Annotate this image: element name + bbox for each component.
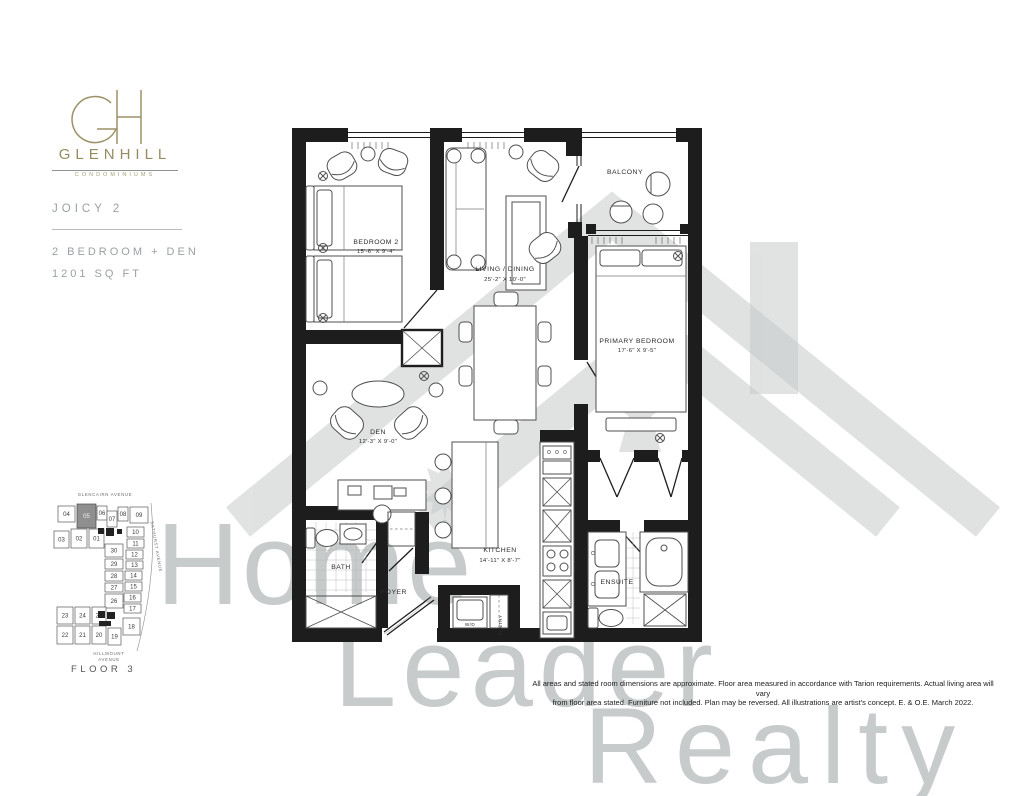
keyplan-unit-label-18: 18 bbox=[128, 625, 135, 631]
street-label-hillmount-2: AVENUE bbox=[98, 657, 120, 662]
primary-bedroom-label: PRIMARY BEDROOM bbox=[599, 338, 674, 345]
keyplan-unit-label-13: 13 bbox=[131, 563, 138, 569]
keyplan-unit-label-04: 04 bbox=[63, 512, 70, 518]
floor-plan: BEDROOM 2 15'-6" X 9'-4" LIVING / DINING… bbox=[290, 108, 710, 648]
living-furniture bbox=[446, 145, 565, 434]
bedroom2-dims: 15'-6" X 9'-4" bbox=[357, 249, 395, 255]
keyplan-unit-label-28: 28 bbox=[111, 574, 118, 580]
disclaimer-line-2: from floor area stated. Furniture not in… bbox=[532, 698, 994, 708]
kitchen-dims: 14'-11" X 8'-7" bbox=[479, 558, 520, 564]
balcony-furniture bbox=[610, 172, 670, 224]
keyplan-unit-label-22: 22 bbox=[62, 633, 69, 639]
primary-bedroom-dims: 17'-6" X 9'-5" bbox=[618, 348, 656, 354]
living-dining-dims: 25'-2" X 10'-0" bbox=[484, 277, 526, 283]
sidebar: GLENHILL CONDOMINIUMS JOICY 2 2 BEDROOM … bbox=[0, 0, 230, 796]
plan-area: 1201 SQ FT bbox=[52, 268, 142, 280]
keyplan-unit-label-16: 16 bbox=[129, 596, 136, 602]
keyplan-unit-label-20: 20 bbox=[96, 633, 103, 639]
keyplan-unit-label-08: 08 bbox=[120, 512, 127, 518]
street-label-glencairn: GLENCAIRN AVENUE bbox=[78, 492, 133, 497]
den-furniture bbox=[313, 372, 443, 524]
bath-fixtures bbox=[306, 522, 376, 628]
den-label: DEN bbox=[370, 429, 386, 436]
bedroom2-label: BEDROOM 2 bbox=[353, 239, 398, 246]
keyplan-unit-label-21: 21 bbox=[79, 633, 86, 639]
wd-label: W/D bbox=[465, 622, 475, 627]
keyplan-unit-label-12: 12 bbox=[131, 553, 138, 559]
plan-name: JOICY 2 bbox=[52, 203, 123, 215]
disclaimer-line-1: All areas and stated room dimensions are… bbox=[532, 679, 994, 698]
keyplan-unit-label-07: 07 bbox=[109, 517, 116, 523]
ensuite-label: ENSUITE bbox=[601, 579, 634, 586]
keyplan-unit-label-24: 24 bbox=[79, 614, 86, 620]
plan-type: 2 BEDROOM + DEN bbox=[52, 246, 199, 258]
brand-subtitle: CONDOMINIUMS bbox=[52, 172, 178, 178]
keyplan-unit-label-03: 03 bbox=[58, 538, 65, 544]
foyer-fixtures bbox=[388, 512, 415, 546]
keyplan-unit-label-02: 02 bbox=[76, 537, 83, 543]
living-dining-label: LIVING / DINING bbox=[475, 266, 534, 273]
key-plan: GLENCAIRN AVENUE BATHURST AVENUE 0405060… bbox=[45, 487, 215, 672]
balcony-label: BALCONY bbox=[607, 169, 643, 176]
brand-name: GLENHILL bbox=[52, 146, 178, 171]
keyplan-unit-label-19: 19 bbox=[111, 635, 118, 641]
keyplan-unit-label-14: 14 bbox=[130, 574, 137, 580]
kitchen-label: KITCHEN bbox=[483, 547, 516, 554]
bedroom2-closet bbox=[402, 330, 442, 366]
bath-label: BATH bbox=[331, 564, 351, 571]
keyplan-unit-label-05: 05 bbox=[83, 514, 90, 520]
keyplan-unit-label-23: 23 bbox=[62, 614, 69, 620]
keyplan-unit-label-27: 27 bbox=[111, 586, 118, 592]
page: Home Leader Realty bbox=[0, 0, 1030, 796]
den-dims: 12'-3" X 9'-0" bbox=[359, 439, 397, 445]
disclaimer: All areas and stated room dimensions are… bbox=[532, 679, 994, 708]
bedroom2-furniture bbox=[306, 146, 410, 323]
keyplan-unit-label-17: 17 bbox=[129, 607, 136, 613]
keyplan-unit-label-30: 30 bbox=[111, 549, 118, 555]
keyplan-unit-label-29: 29 bbox=[111, 562, 118, 568]
pantry-label: PANTRY bbox=[498, 615, 503, 636]
foyer-label: FOYER bbox=[381, 589, 407, 596]
keyplan-unit-label-01: 01 bbox=[93, 537, 100, 543]
keyplan-unit-label-15: 15 bbox=[130, 585, 137, 591]
keyplan-unit-label-11: 11 bbox=[132, 542, 139, 548]
keyplan-unit-label-10: 10 bbox=[132, 530, 139, 536]
glenhill-monogram-icon bbox=[68, 88, 144, 146]
keyplan-unit-label-26: 26 bbox=[111, 599, 118, 605]
keyplan-unit-label-09: 09 bbox=[136, 513, 143, 519]
keyplan-unit-label-06: 06 bbox=[99, 511, 106, 517]
street-label-hillmount-1: HILLMOUNT bbox=[93, 651, 124, 656]
divider-line bbox=[52, 229, 182, 230]
